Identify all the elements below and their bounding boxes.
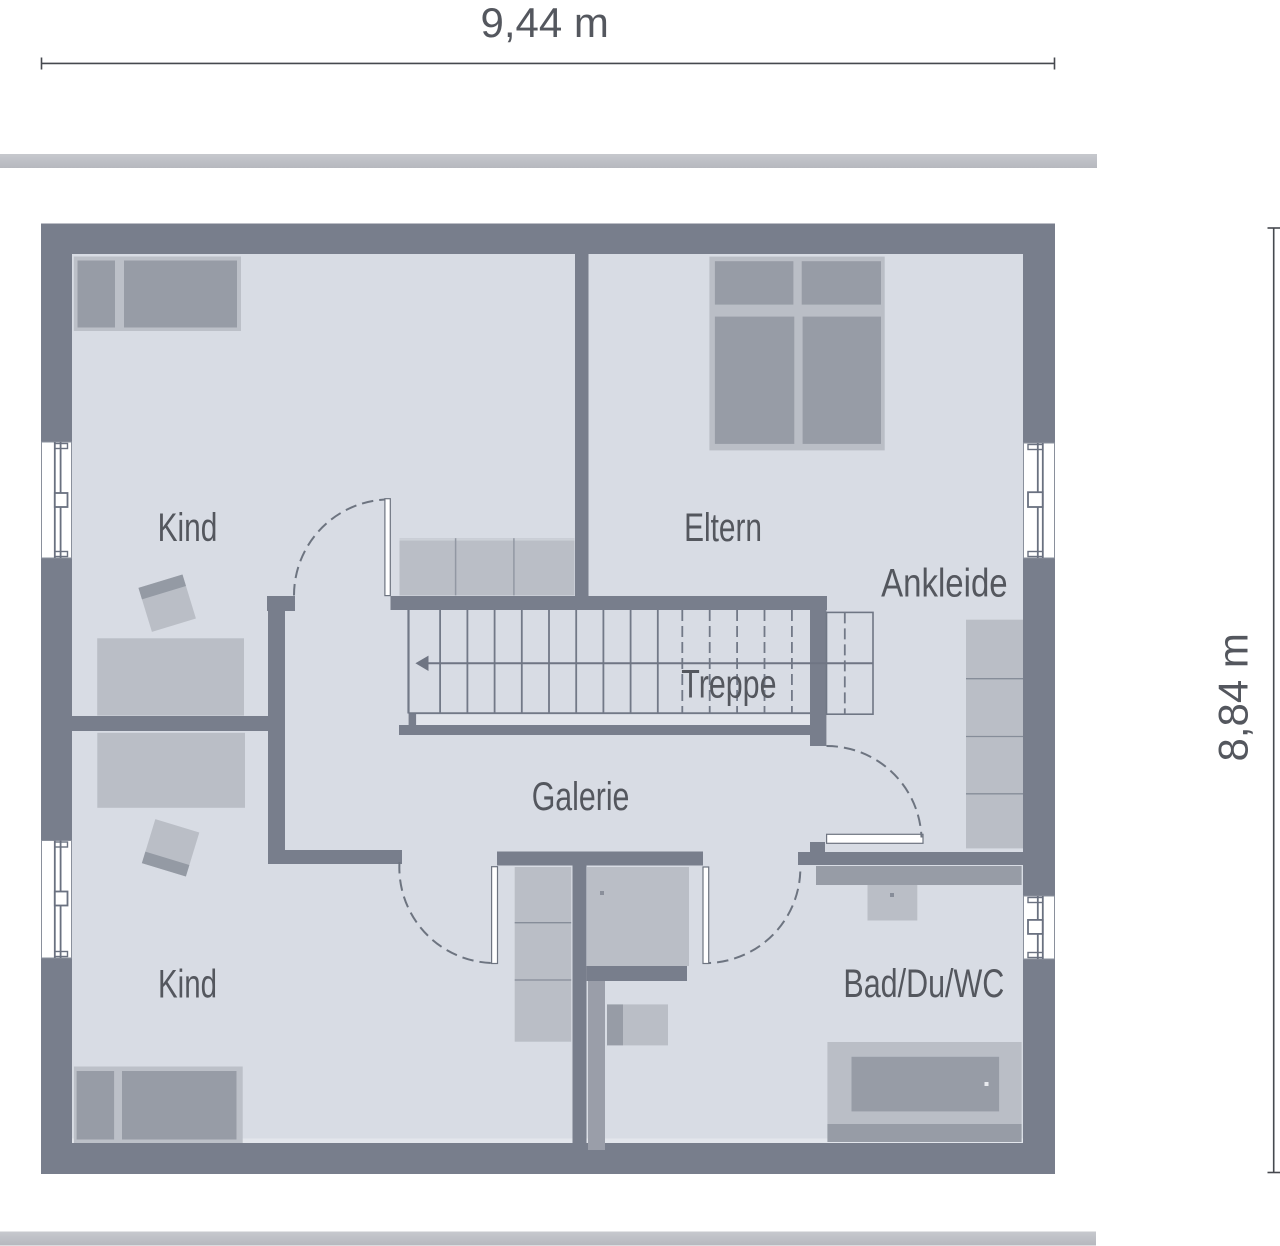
- svg-text:9,44 m: 9,44 m: [480, 0, 608, 46]
- svg-text:Galerie: Galerie: [532, 774, 630, 819]
- svg-text:Bad/Du/WC: Bad/Du/WC: [843, 961, 1004, 1006]
- svg-text:Kind: Kind: [158, 962, 217, 1006]
- svg-text:Eltern: Eltern: [684, 506, 762, 550]
- svg-text:Ankleide: Ankleide: [881, 560, 1008, 605]
- svg-text:8,84 m: 8,84 m: [1210, 633, 1257, 761]
- svg-text:Treppe: Treppe: [681, 662, 776, 707]
- svg-text:Kind: Kind: [158, 506, 218, 550]
